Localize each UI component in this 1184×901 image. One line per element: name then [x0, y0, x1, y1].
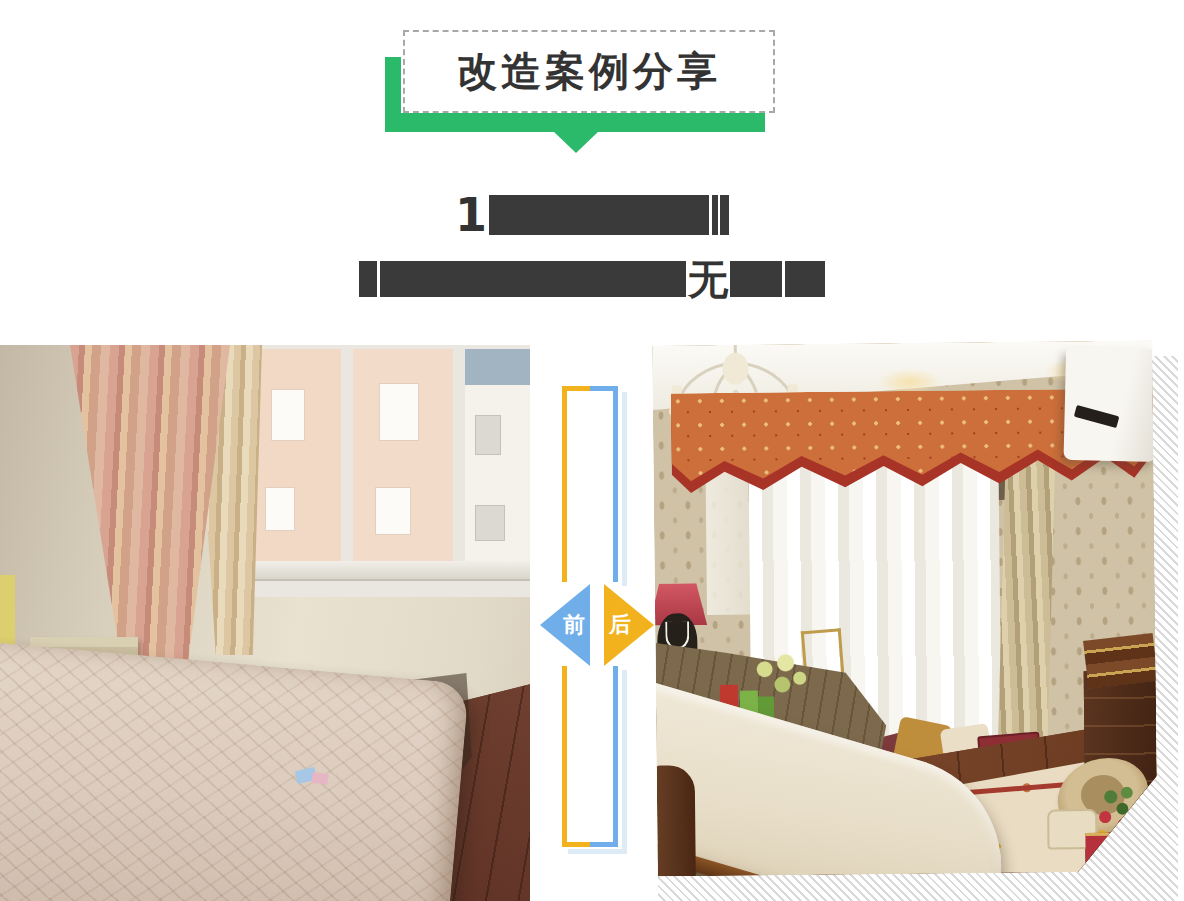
window-rail	[213, 561, 530, 579]
building-window	[379, 383, 419, 441]
air-conditioner-vent	[1074, 405, 1120, 428]
before-arrow-label: 前	[563, 610, 585, 640]
section-badge: 改造案例分享	[403, 30, 775, 113]
building-window	[375, 487, 411, 535]
case-subtitle: 无	[0, 258, 1184, 300]
divider-frame	[562, 666, 567, 847]
paper-scrap	[311, 772, 328, 785]
mattress	[0, 640, 469, 901]
subtitle-redaction-fragment	[359, 261, 377, 297]
ribbon-bottom-bar	[385, 113, 765, 132]
after-photo	[652, 340, 1158, 876]
title-redaction-bar	[489, 195, 709, 235]
case-title-prefix: 1	[455, 192, 487, 238]
divider-frame	[613, 386, 618, 582]
ribbon-arrow-down	[553, 131, 599, 153]
subtitle-redaction-bar	[380, 261, 686, 297]
building-window	[475, 505, 505, 541]
section-badge-label: 改造案例分享	[457, 44, 721, 99]
divider-shadow	[622, 670, 627, 852]
title-redaction-fragment	[720, 195, 729, 235]
before-photo	[0, 345, 530, 901]
title-redaction-fragment	[712, 195, 718, 235]
bouquet	[743, 644, 814, 707]
divider-shadow	[568, 849, 627, 854]
building-window	[475, 415, 501, 455]
subtitle-redaction-fragment	[785, 261, 825, 297]
before-arrow: 前	[540, 584, 590, 666]
subtitle-redaction-bar	[730, 261, 782, 297]
after-arrow: 后	[604, 584, 654, 666]
balcony-glass	[465, 349, 530, 385]
case-title: 1	[0, 191, 1184, 239]
after-arrow-label: 后	[609, 610, 631, 640]
divider-frame	[613, 666, 618, 847]
books	[1083, 633, 1158, 689]
page: 改造案例分享 1 无	[0, 0, 1184, 901]
case-subtitle-fragment: 无	[688, 259, 728, 299]
building-window	[265, 487, 295, 531]
divider-frame	[562, 386, 567, 582]
divider-shadow	[622, 392, 627, 586]
air-conditioner	[1064, 348, 1158, 462]
building-window	[271, 389, 305, 441]
bed-post	[652, 765, 696, 876]
